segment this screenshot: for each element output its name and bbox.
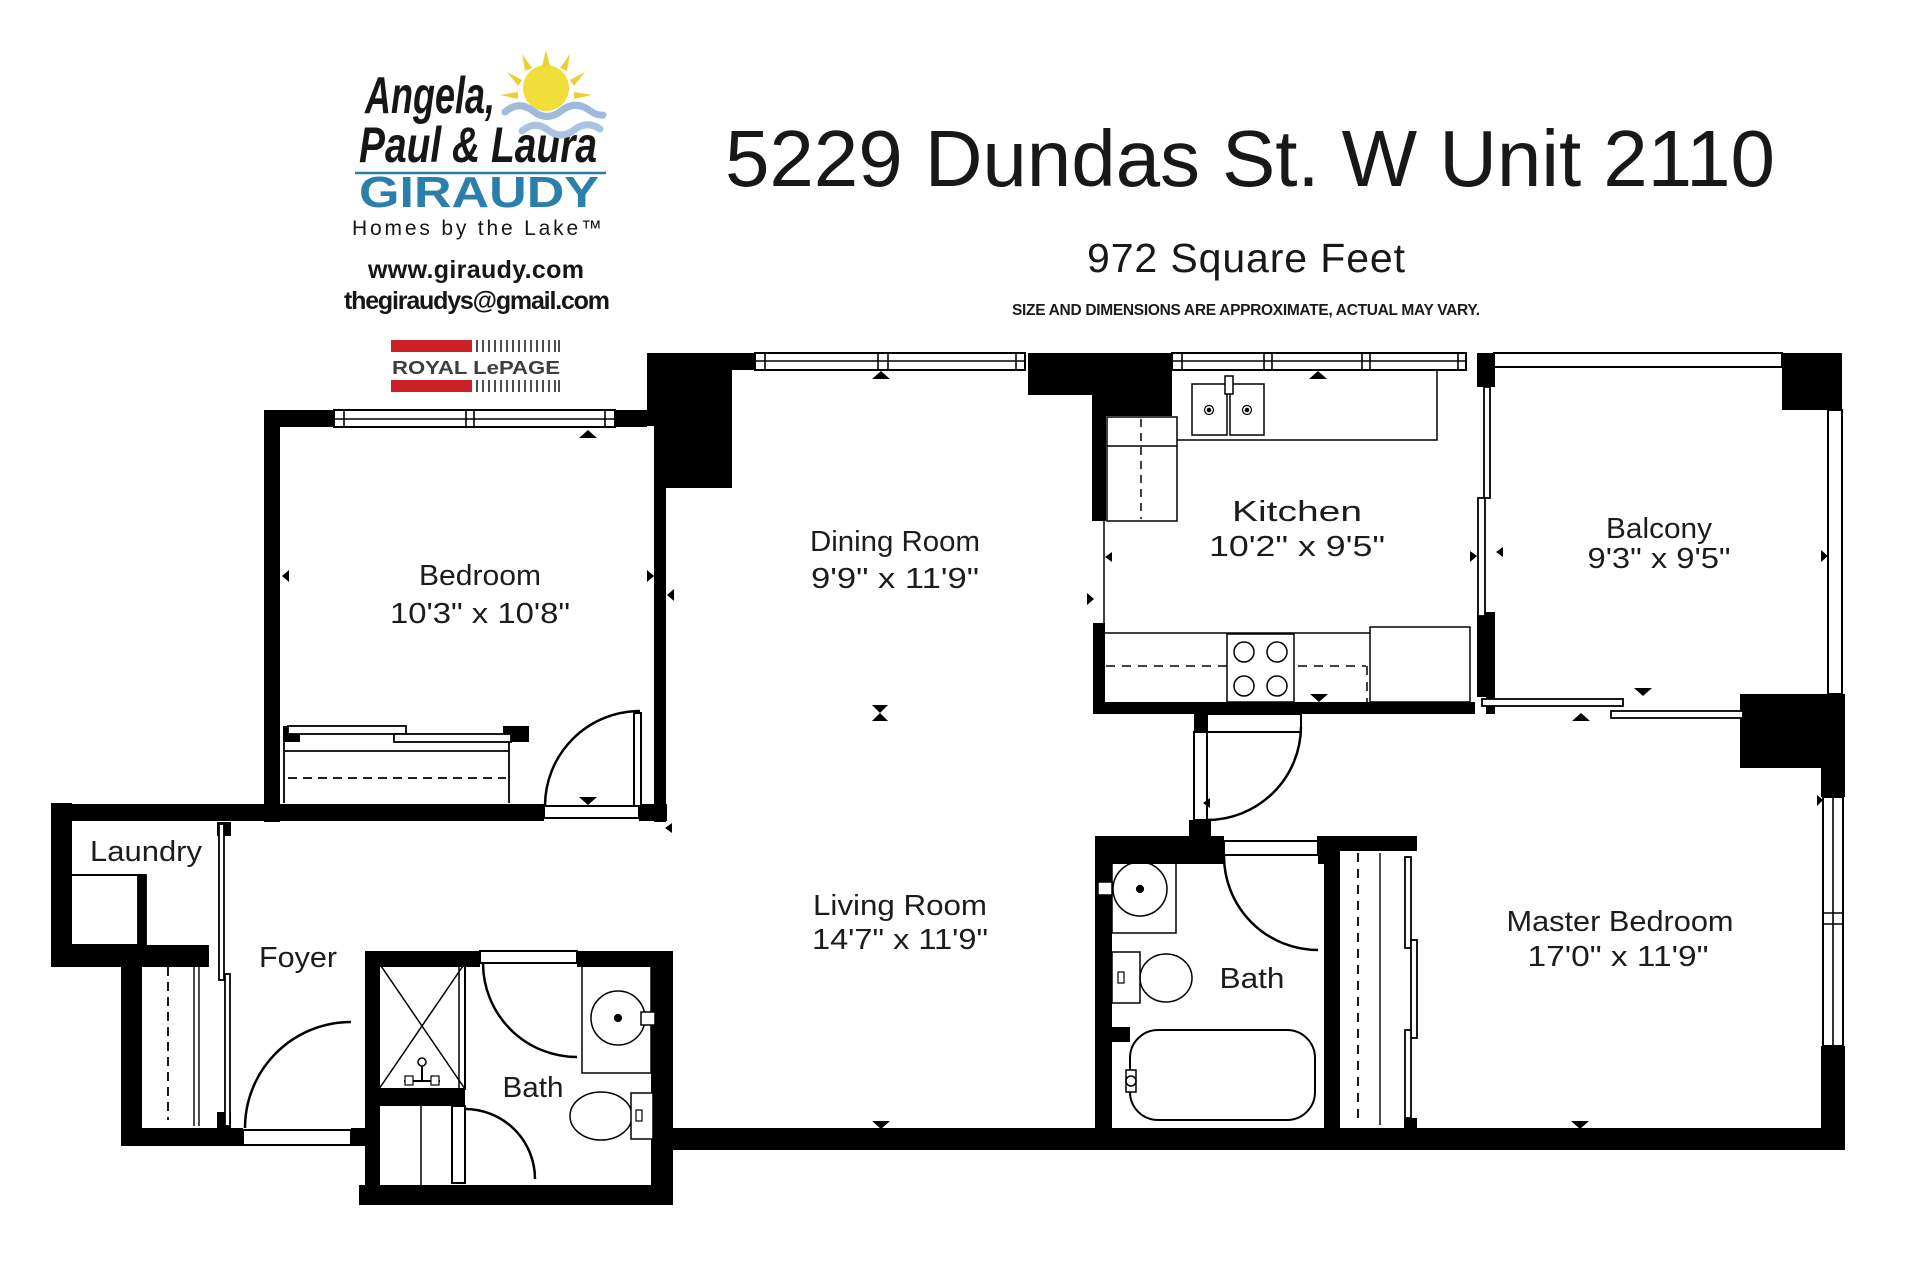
svg-text:ROYAL LePAGE: ROYAL LePAGE (392, 358, 560, 378)
svg-text:14'7" x 11'9": 14'7" x 11'9" (812, 924, 988, 956)
svg-text:Paul & Laura: Paul & Laura (359, 117, 597, 173)
svg-text:Foyer: Foyer (259, 942, 337, 974)
svg-text:GIRAUDY: GIRAUDY (359, 168, 599, 217)
svg-text:thegiraudys@gmail.com: thegiraudys@gmail.com (344, 287, 610, 315)
svg-text:Bedroom: Bedroom (419, 560, 541, 592)
svg-text:Balcony: Balcony (1606, 513, 1713, 545)
svg-text:Bath: Bath (1220, 963, 1285, 995)
svg-text:www.giraudy.com: www.giraudy.com (367, 256, 584, 284)
svg-text:Kitchen: Kitchen (1232, 496, 1362, 528)
svg-text:10'2" x 9'5": 10'2" x 9'5" (1209, 531, 1385, 563)
svg-text:SIZE AND DIMENSIONS ARE APPROX: SIZE AND DIMENSIONS ARE APPROXIMATE, ACT… (1012, 302, 1480, 319)
svg-text:5229 Dundas St. W Unit 2110: 5229 Dundas St. W Unit 2110 (725, 114, 1775, 203)
svg-text:Master Bedroom: Master Bedroom (1507, 906, 1734, 938)
svg-text:Dining Room: Dining Room (810, 526, 980, 558)
svg-text:17'0" x 11'9": 17'0" x 11'9" (1528, 941, 1709, 973)
svg-text:9'9" x 11'9": 9'9" x 11'9" (811, 563, 979, 595)
svg-text:9'3" x 9'5": 9'3" x 9'5" (1588, 543, 1731, 575)
svg-text:972 Square Feet: 972 Square Feet (1087, 235, 1406, 281)
svg-text:Laundry: Laundry (90, 836, 203, 868)
svg-text:10'3" x 10'8": 10'3" x 10'8" (390, 598, 570, 630)
svg-text:Living Room: Living Room (813, 890, 987, 922)
svg-text:Bath: Bath (503, 1072, 564, 1104)
